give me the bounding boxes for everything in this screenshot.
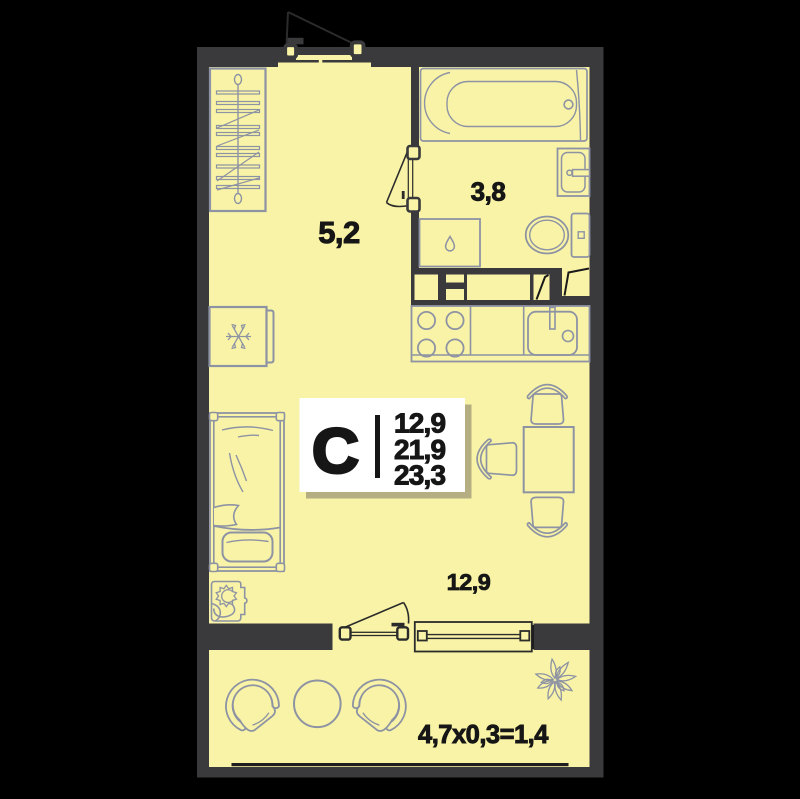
svg-text:23,3: 23,3 — [394, 460, 446, 491]
svg-text:3,8: 3,8 — [471, 177, 506, 207]
svg-text:С: С — [312, 417, 359, 487]
svg-text:4,7x0,3=1,4: 4,7x0,3=1,4 — [418, 721, 549, 749]
svg-text:5,2: 5,2 — [318, 215, 360, 250]
svg-text:12,9: 12,9 — [447, 569, 491, 595]
